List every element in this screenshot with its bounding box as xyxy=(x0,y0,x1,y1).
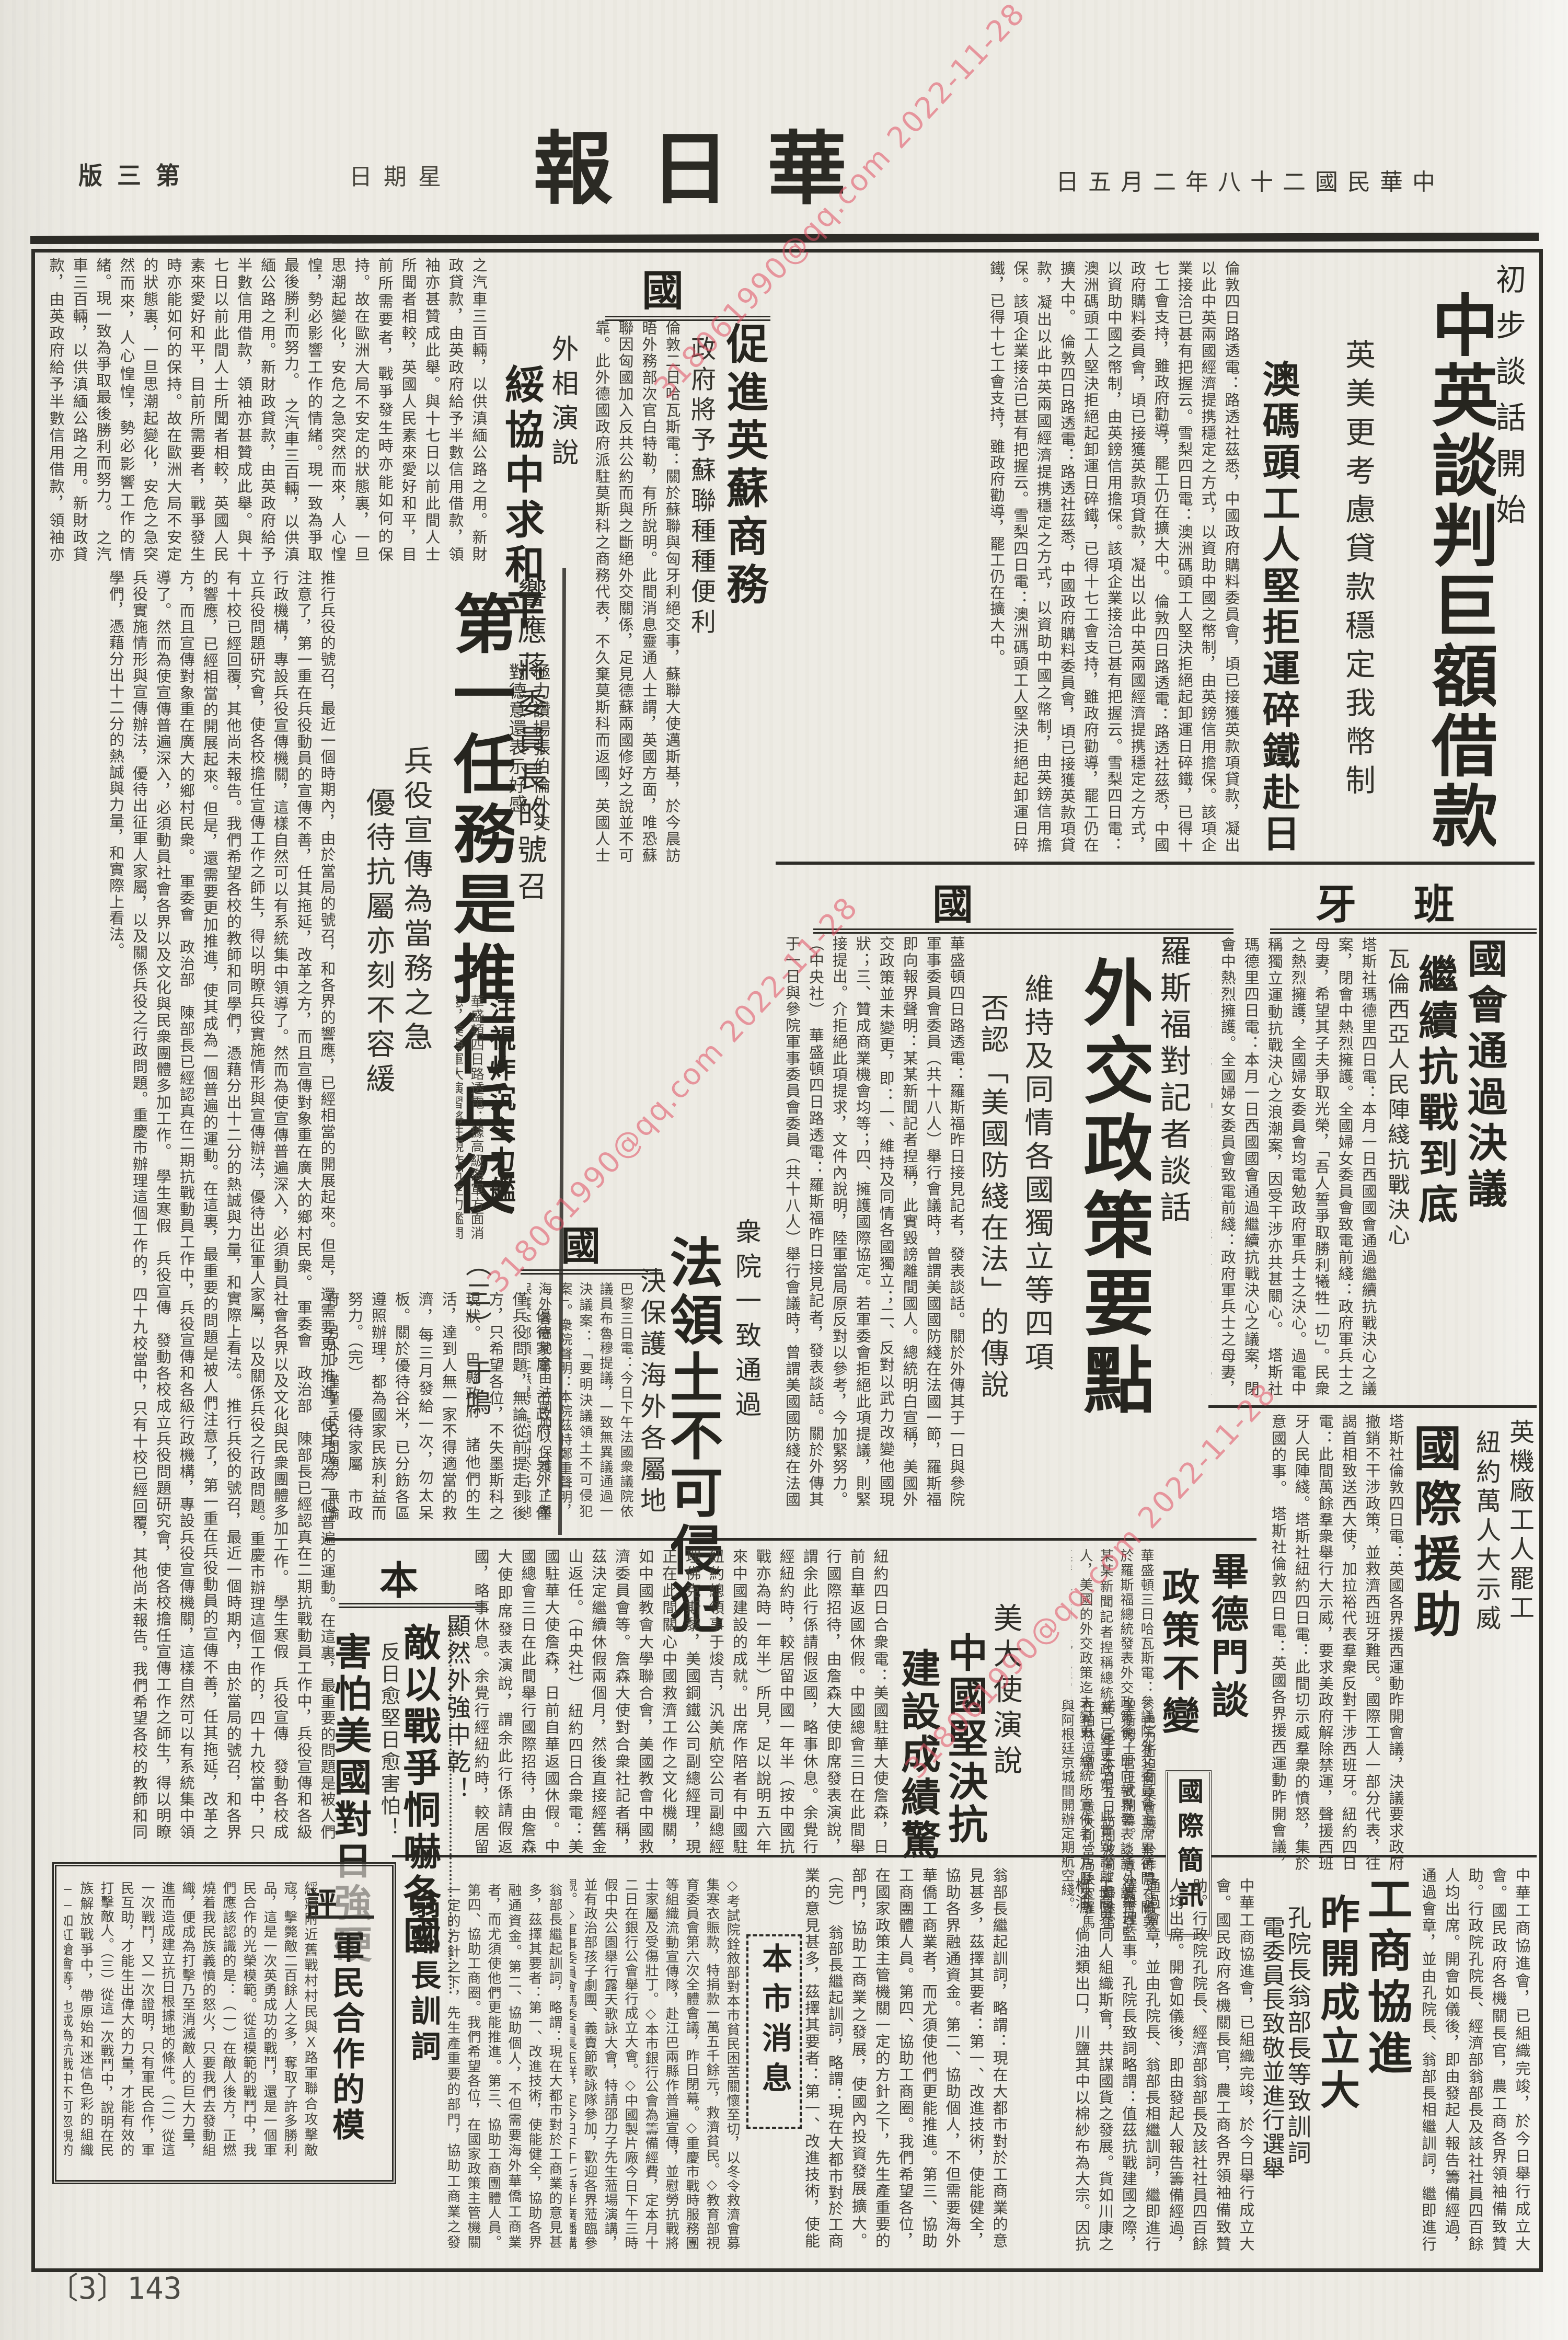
conscription-body-left: 推行兵役的號召，最近一個時期內，由於當局的號召，和各界的響應，已經相當的開展起來… xyxy=(45,570,339,1840)
section-label-japan: 本日 xyxy=(339,1550,485,1608)
masthead-date: 日五月二年八十二國民華中 xyxy=(1056,163,1505,196)
us-body: 華盛頓四日路透電：羅斯福昨日接見記者，發表談話。關於外傳其于一日與參院軍事委員會… xyxy=(780,936,968,1508)
france-subhead: 決保護海外各屬地 xyxy=(640,1267,670,1560)
edition-label: 版三第 xyxy=(78,157,214,193)
city-news-body: ◇考試院銓敘部對本市貧民困苦關懷至切，以冬令救濟會募集寒衣賑款，特捐款一萬五千餘… xyxy=(570,1878,742,2250)
us-subhead-1: 維持及同情各國獨立等四項 xyxy=(1017,973,1058,1460)
spain-story2-body: 塔斯社倫敦四日電：英國各界援西運動昨開會議，決議要求政府撤銷不干涉政策，並救濟西… xyxy=(1270,1414,1407,1872)
lead-continuation-body: 之汽車三百輛，以供滇緬公路之用。新財政貸款，由英政府給予半數信用借款，領袖亦甚贊… xyxy=(45,257,490,563)
lead-subhead-2: 澳碼頭工人堅拒運碎鐵赴日 xyxy=(1252,360,1306,872)
france-body: 巴黎三日電：今日下午法國衆議院依議員布魯穆提議，一致無異議通過一決議案：「要明決… xyxy=(527,1282,636,1518)
uk-story1-headline: 促進英蘇商務 xyxy=(724,322,775,636)
conscription-subhead-2: 優待抗屬亦刻不容緩 xyxy=(362,787,399,1132)
speech-continuation-body: 翁部長繼起訓詞，略謂：現在大都市對於工商業的意見甚多，茲擇其要者：第一、改進技術… xyxy=(802,1867,1011,2249)
weekday-label: 日期星 xyxy=(349,158,464,192)
france-kicker: 衆院一致通過 xyxy=(732,1218,765,1479)
spain-story1-headline-1: 國會通過決議 xyxy=(1466,938,1513,1236)
ambassador-body: 紐約四日合衆電：美國駐華大使詹森，日前自華返國休假。中國總會三日在此間舉行國際招… xyxy=(474,1548,892,1855)
commerce-subhead-1: 孔院長翁部長等致訓詞 xyxy=(1289,1905,1315,2266)
lead-subhead-1: 英美更考慮貸款穩定我幣制 xyxy=(1336,339,1380,825)
lead-headline: 中英談判巨額借款 xyxy=(1393,291,1496,861)
navy-body: 華盛頓四日路透電：據高級海軍方面消息，美海軍大演習將注視炸沉主力艦問題，藉以解決… xyxy=(456,994,486,1240)
spain-story2-subhead-2: 紐約萬人大示威 xyxy=(1474,1429,1504,1675)
editorial-headline: 軍民合作的模範 xyxy=(328,1930,369,2160)
uk-story1-subhead: 政府將予蘇聯種種便利 xyxy=(687,336,719,691)
conscription-body-mid: 優待家屬 市政府 另外，僅僅兵役問題，無論從前提走到後方，只希望各位，不失墨斯科… xyxy=(329,1291,554,1521)
uk-story2-kicker: 外相演說 xyxy=(550,335,582,491)
commerce-body-right: 中華工商協進會，已組織完竣，於今日舉行成立大會。國民政府各機關長官，農工商各界領… xyxy=(1423,1867,1534,2252)
newspaper-page: 版三第 日期星 報日華新 日五月二年八十二國民華中 初步談話開始 中英談判巨額借… xyxy=(0,0,1568,2340)
commerce-subhead-2: 電委員長致敬並進行選舉 xyxy=(1262,1915,1288,2281)
commerce-body: 中華工商協進會，已組織完竣，於今日舉行成立大會。國民政府各機關長官，農工商各界領… xyxy=(1071,1878,1258,2252)
lead-kicker: 初步談話開始 xyxy=(1493,263,1530,567)
weng-body: 翁部長繼起訓詞，略謂：現在大都市對於工商業的意見甚多，茲擇其要者：第一、改進技術… xyxy=(447,1883,564,2249)
biddle-headline-2: 政策不變 xyxy=(1160,1567,1205,1766)
navy-headline: 注視炸沉主力艦 xyxy=(488,994,520,1235)
us-kicker: 羅斯福對記者談話 xyxy=(1155,935,1196,1280)
section-label-spain: 牙班西 xyxy=(1270,872,1537,934)
conscription-subhead-1: 兵役宣傳為當務之急 xyxy=(399,745,437,1091)
spain-story1-subhead: 瓦倫西亞人民陣綫抗戰決心 xyxy=(1384,947,1413,1292)
spain-story1-body: 塔斯社瑪德里四日電：本月一日西國國會通過繼續抗戰決心之議案，閉會中熱烈擁護。全國… xyxy=(1212,937,1380,1397)
spain-story1-headline-2: 繼續抗戰到底 xyxy=(1416,954,1463,1252)
commerce-headline-2: 昨開成立大會 xyxy=(1315,1894,1365,2155)
commerce-headline-1: 工商協進會 xyxy=(1366,1876,1419,2121)
spain-story2-subhead-1: 英機廠工人罷工 xyxy=(1507,1419,1538,1665)
lead-body: 倫敦四日路透電：路透社茲悉，中國政府購料委員會，頃已接獲英款項貸款，凝出以此中英… xyxy=(783,260,1243,853)
spain-story2-headline: 國際援助 xyxy=(1412,1423,1469,1653)
city-news-label: 本市消息 xyxy=(746,1934,802,2129)
us-headline: 外交政策要點 xyxy=(1064,956,1151,1442)
weng-headline: 翁部長訓詞 xyxy=(410,1888,445,2071)
biddle-headline-1: 畢德門談 xyxy=(1209,1552,1254,1750)
conscription-kicker: 響應蔣委員長的號召 xyxy=(514,578,551,913)
us-subhead-2: 否認「美國防綫在法」的傳說 xyxy=(972,993,1013,1511)
page-number: 〔3〕143 xyxy=(48,2264,236,2305)
editorial-body: 綏寢附近舊戰村村民與Ｘ路軍聯合攻擊敵寇，擊斃敵二百餘人之多，奪取了許多勝利品，這… xyxy=(64,1881,320,2157)
